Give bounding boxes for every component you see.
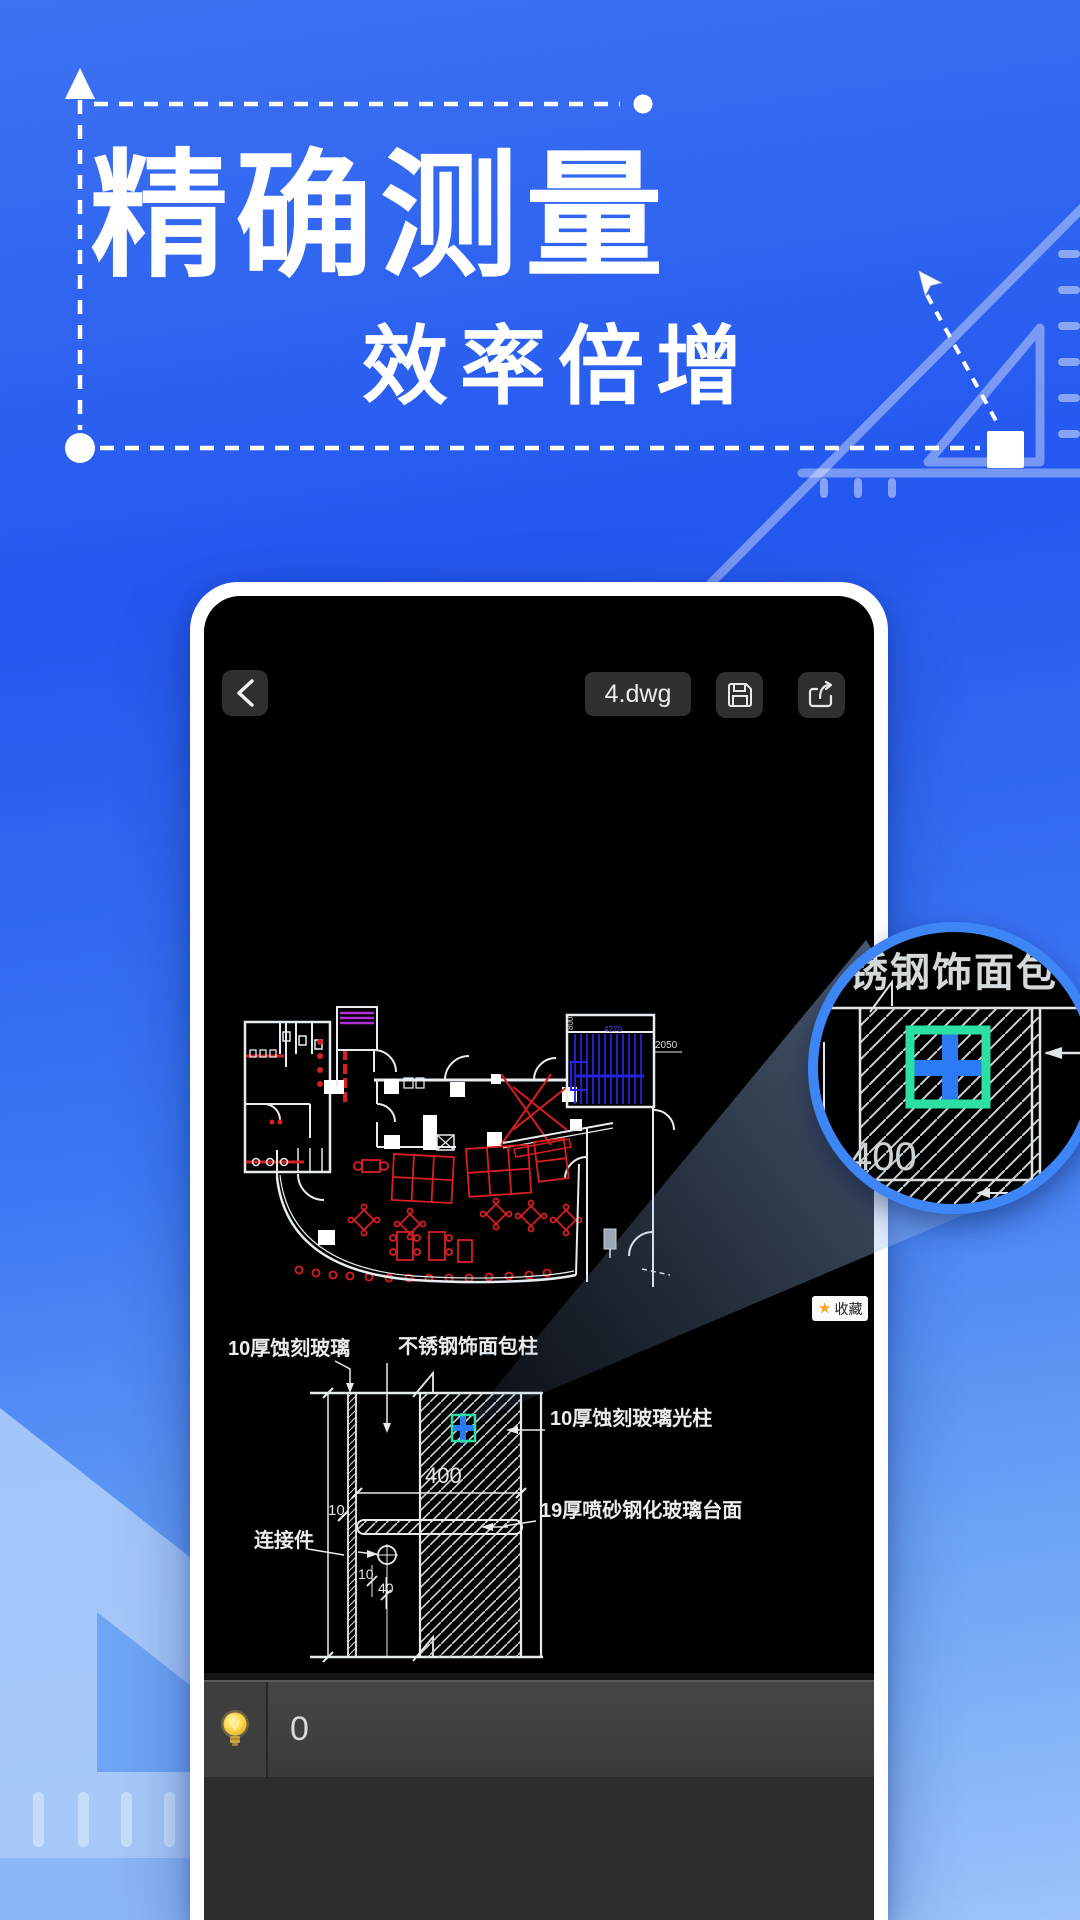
magnifier-top-label: 不锈钢饰面包柱 xyxy=(808,940,1080,998)
cad-floor-plan[interactable]: 800 4270 2050 xyxy=(214,992,874,1322)
floorplan-toilet-block xyxy=(245,1022,347,1200)
phone-mockup: 4.dwg xyxy=(190,582,888,1920)
hero-subtitle: 效率倍增 xyxy=(362,296,754,421)
app-screen: 4.dwg xyxy=(204,596,874,1920)
stair-dim-800: 800 xyxy=(566,1016,575,1030)
back-button[interactable] xyxy=(222,670,268,716)
hero-title: 精确测量 xyxy=(90,104,670,304)
label-counter: 19厚喷砂钢化玻璃台面 xyxy=(540,1498,742,1522)
cursor-arrow-icon xyxy=(918,270,943,297)
filename-label: 4.dwg xyxy=(605,680,672,709)
floppy-disk-icon xyxy=(727,682,753,708)
label-glass: 10厚蚀刻玻璃 xyxy=(228,1336,350,1360)
circle-endpoint xyxy=(65,433,95,463)
star-icon: ★ xyxy=(818,1301,831,1316)
lightbulb-icon xyxy=(218,1709,252,1751)
label-column-wrap: 不锈钢饰面包柱 xyxy=(398,1334,538,1358)
stair-dim-4270: 4270 xyxy=(604,1025,622,1034)
cad-detail-drawing[interactable]: 400 10 10 40 xyxy=(210,1325,874,1665)
floorplan-shaft xyxy=(337,1007,396,1087)
label-light-column: 10厚蚀刻玻璃光柱 xyxy=(550,1406,712,1430)
favorite-label: 收藏 xyxy=(834,1302,862,1316)
command-toolbar: 0 xyxy=(204,1682,874,1777)
toolbar-gap xyxy=(204,1673,874,1680)
label-connector: 连接件 xyxy=(254,1528,314,1552)
save-button[interactable] xyxy=(716,672,763,718)
detail-structure xyxy=(310,1373,543,1662)
share-button[interactable] xyxy=(798,672,845,718)
favorite-badge[interactable]: ★ 收藏 xyxy=(812,1296,868,1321)
arrowhead-up xyxy=(65,68,95,99)
command-value: 0 xyxy=(290,1710,309,1749)
dim-10-conn-label: 10 xyxy=(358,1566,374,1582)
cursor-dashed-line xyxy=(927,295,1000,428)
command-input[interactable]: 0 xyxy=(268,1682,874,1777)
hint-button[interactable] xyxy=(204,1682,268,1777)
promo-screenshot: 精确测量 效率倍增 4.dwg xyxy=(0,0,1080,1920)
share-out-icon xyxy=(808,681,836,709)
chair-dots-row xyxy=(296,1267,551,1282)
floorplan-staircase: 800 4270 2050 xyxy=(566,1015,682,1107)
dim-400-label: 400 xyxy=(425,1463,462,1488)
floorplan-furniture xyxy=(296,1138,582,1281)
filename-chip[interactable]: 4.dwg xyxy=(585,672,691,716)
magnifier-circle: 400 不锈钢饰面包柱 xyxy=(808,922,1080,1214)
magnifier-dim-400: 400 xyxy=(850,1135,917,1179)
diamond-tables xyxy=(349,1199,582,1240)
keyboard-area xyxy=(204,1777,874,1920)
stair-dim-2050: 2050 xyxy=(655,1040,678,1051)
chevron-left-icon xyxy=(234,678,256,708)
square-endpoint xyxy=(987,431,1024,468)
